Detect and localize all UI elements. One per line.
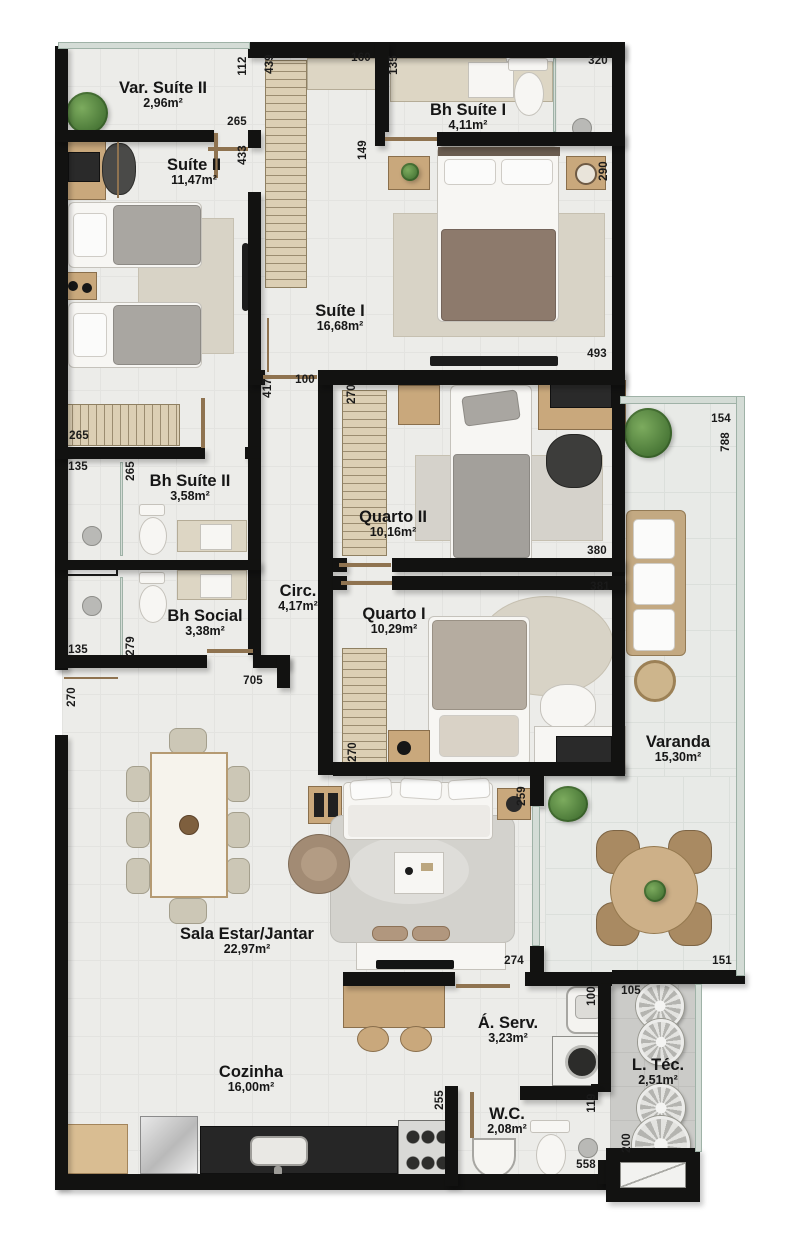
dim-label: 135 bbox=[388, 55, 400, 75]
room-label-bh-suite1: Bh Suíte I 4,11m² bbox=[430, 101, 506, 133]
shower-head-bh-social-icon bbox=[82, 596, 102, 616]
pouf-quarto1 bbox=[540, 684, 596, 730]
room-area: 10,16m² bbox=[359, 526, 427, 540]
blanket bbox=[113, 205, 201, 265]
toilet-tank-bh-suite2 bbox=[139, 504, 165, 516]
chair-suite2 bbox=[102, 143, 136, 195]
room-label-varanda: Varanda 15,30m² bbox=[646, 733, 710, 765]
decor-icon bbox=[421, 863, 433, 871]
dim-label: 433 bbox=[237, 145, 249, 165]
wall bbox=[375, 42, 389, 132]
wall bbox=[318, 385, 333, 775]
room-area: 4,11m² bbox=[430, 119, 506, 133]
dimension-line bbox=[64, 677, 118, 679]
dimension-line bbox=[267, 318, 269, 372]
dim-label: 788 bbox=[720, 432, 732, 452]
wall bbox=[445, 1086, 458, 1186]
room-area: 2,51m² bbox=[632, 1074, 684, 1088]
plant-icon bbox=[401, 163, 419, 181]
room-name: Sala Estar/Jantar bbox=[180, 925, 314, 943]
washer-door-icon bbox=[565, 1045, 599, 1079]
cushion bbox=[349, 777, 393, 801]
wc-toilet-tank bbox=[530, 1120, 570, 1133]
room-name: Suíte I bbox=[315, 302, 365, 320]
room-name: Quarto I bbox=[362, 605, 425, 623]
dim-label: 105 bbox=[621, 985, 641, 997]
bed-suite1 bbox=[437, 146, 559, 322]
wall bbox=[55, 735, 68, 1187]
shower-glass-bh-social bbox=[120, 577, 123, 657]
armchair-sala bbox=[288, 834, 350, 894]
blanket bbox=[432, 620, 527, 710]
shaft-hatch bbox=[620, 1162, 686, 1188]
room-label-var-suite2: Var. Suíte II 2,96m² bbox=[119, 79, 207, 111]
dim-label: 149 bbox=[357, 140, 369, 160]
toilet-tank-bh-suite1 bbox=[508, 58, 548, 71]
room-area: 3,58m² bbox=[150, 490, 231, 504]
plant-varanda-top bbox=[624, 408, 672, 458]
room-label-quarto1: Quarto I 10,29m² bbox=[362, 605, 425, 637]
decor-icon bbox=[68, 281, 78, 291]
sofa-varanda bbox=[626, 510, 686, 656]
door-bh-suite1 bbox=[385, 137, 437, 141]
shower-head-bh-suite2-icon bbox=[82, 526, 102, 546]
dim-label: 112 bbox=[237, 56, 249, 75]
dining-chair bbox=[226, 812, 250, 848]
blanket bbox=[453, 454, 530, 558]
sink-bh-suite2 bbox=[200, 524, 232, 550]
dining-chair bbox=[169, 728, 207, 754]
dim-label: 270 bbox=[346, 384, 358, 404]
dim-label: 320 bbox=[588, 55, 608, 67]
pillow bbox=[73, 313, 107, 357]
dim-label: 417 bbox=[262, 378, 274, 398]
room-name: Bh Suíte II bbox=[150, 472, 231, 490]
dim-label: 274 bbox=[504, 955, 524, 967]
wall bbox=[437, 132, 625, 146]
toilet-tank-bh-social bbox=[139, 572, 165, 584]
room-label-quarto2: Quarto II 10,16m² bbox=[359, 508, 427, 540]
door-bh-suite2 bbox=[201, 398, 205, 448]
kitchen-table bbox=[343, 980, 445, 1028]
room-area: 15,30m² bbox=[646, 751, 710, 765]
wall bbox=[248, 192, 261, 447]
room-name: Suíte II bbox=[167, 156, 221, 174]
pillow bbox=[444, 159, 496, 185]
wall bbox=[55, 447, 205, 459]
dim-label: 119 bbox=[586, 1093, 598, 1112]
room-area: 2,96m² bbox=[119, 97, 207, 111]
wall bbox=[612, 970, 745, 984]
shower-glass-bh-suite2 bbox=[120, 462, 123, 556]
pillow bbox=[501, 159, 553, 185]
decor-icon bbox=[405, 867, 413, 875]
bed-suite2-b bbox=[68, 302, 202, 368]
shower-glass-bh-suite1 bbox=[553, 58, 556, 132]
cushion bbox=[633, 563, 675, 605]
dim-label: 151 bbox=[712, 955, 732, 967]
dimension-line bbox=[117, 142, 119, 198]
room-area: 16,68m² bbox=[315, 320, 365, 334]
dim-label: 290 bbox=[598, 161, 610, 181]
room-name: Varanda bbox=[646, 733, 710, 751]
seat bbox=[301, 847, 337, 881]
room-area: 10,29m² bbox=[362, 623, 425, 637]
floor-cushion bbox=[412, 926, 450, 941]
dim-label: 270 bbox=[347, 742, 359, 762]
dining-chair bbox=[126, 812, 150, 848]
wall bbox=[55, 130, 214, 142]
wall bbox=[55, 1174, 612, 1190]
wall bbox=[530, 776, 544, 806]
wall bbox=[318, 370, 625, 385]
dim-label: 100 bbox=[586, 986, 598, 1006]
dim-label: 265 bbox=[227, 116, 247, 128]
cushion bbox=[447, 778, 490, 801]
decor-icon bbox=[82, 283, 92, 293]
door-wc bbox=[470, 1092, 474, 1138]
shower-head-wc-icon bbox=[578, 1138, 598, 1158]
room-name: Bh Suíte I bbox=[430, 101, 506, 119]
kitchen-cabinet bbox=[62, 1124, 128, 1174]
room-name: Var. Suíte II bbox=[119, 79, 207, 97]
stool bbox=[357, 1026, 389, 1052]
toilet-bh-social bbox=[139, 585, 167, 623]
plant-varanda-door bbox=[548, 786, 588, 822]
dim-label: 135 bbox=[68, 461, 88, 473]
toilet-bh-suite2 bbox=[139, 517, 167, 555]
room-area: 3,23m² bbox=[478, 1032, 538, 1046]
wall bbox=[598, 984, 611, 1084]
dim-label: 255 bbox=[434, 1090, 446, 1110]
dim-label: 265 bbox=[69, 430, 89, 442]
dining-chair bbox=[126, 858, 150, 894]
blanket bbox=[441, 229, 556, 321]
pillow bbox=[73, 213, 107, 257]
dim-label: 265 bbox=[125, 461, 137, 481]
room-label-aserv: Á. Serv. 3,23m² bbox=[478, 1014, 538, 1046]
dim-label: 381 bbox=[590, 581, 610, 593]
dim-label: 135 bbox=[68, 644, 88, 656]
tv-suite1-icon bbox=[430, 356, 558, 366]
floor-cushion bbox=[372, 926, 408, 941]
room-name: L. Téc. bbox=[632, 1056, 684, 1074]
sink-bh-social bbox=[200, 574, 232, 598]
centerpiece-plant-icon bbox=[644, 880, 666, 902]
dim-label: 160 bbox=[351, 52, 371, 64]
room-label-wc: W.C. 2,08m² bbox=[487, 1105, 527, 1137]
door-quarto1 bbox=[341, 581, 392, 585]
pillow bbox=[461, 389, 521, 427]
decor-icon bbox=[314, 793, 324, 817]
room-label-cozinha: Cozinha 16,00m² bbox=[219, 1063, 283, 1095]
room-name: Circ. bbox=[278, 582, 318, 600]
plant-var-suite2 bbox=[66, 92, 108, 134]
door-quarto2 bbox=[339, 563, 391, 567]
dim-label: 270 bbox=[66, 687, 78, 707]
room-area: 16,00m² bbox=[219, 1081, 283, 1095]
dim-label: 493 bbox=[587, 348, 607, 360]
toilet-bh-suite1 bbox=[514, 72, 544, 116]
wall bbox=[343, 972, 455, 986]
wall bbox=[333, 762, 625, 776]
door-aserv bbox=[456, 984, 510, 988]
bed-quarto1 bbox=[428, 616, 530, 766]
monitor-quarto2-icon bbox=[550, 384, 612, 408]
wall bbox=[375, 132, 385, 146]
nightstand-quarto2 bbox=[398, 385, 440, 425]
room-area: 11,47m² bbox=[167, 174, 221, 188]
room-name: Cozinha bbox=[219, 1063, 283, 1081]
nightstand-suite2 bbox=[63, 272, 97, 300]
wall bbox=[248, 42, 625, 58]
dim-label: 279 bbox=[125, 636, 137, 656]
room-area: 4,17m² bbox=[278, 600, 318, 614]
wall bbox=[248, 130, 261, 148]
dim-label: 259 bbox=[516, 786, 528, 806]
floor-plan: 112 265 439 160 135 320 433 149 290 493 … bbox=[0, 0, 810, 1246]
pillow bbox=[439, 715, 519, 757]
coffee-table-sala bbox=[394, 852, 444, 894]
wall bbox=[248, 459, 261, 655]
room-name: W.C. bbox=[487, 1105, 527, 1123]
room-label-bh-suite2: Bh Suíte II 3,58m² bbox=[150, 472, 231, 504]
stool bbox=[400, 1026, 432, 1052]
dining-chair bbox=[226, 858, 250, 894]
room-area: 3,38m² bbox=[167, 625, 242, 639]
bed-suite2-a bbox=[68, 202, 202, 268]
ltec-glass bbox=[695, 984, 702, 1152]
room-label-ltec: L. Téc. 2,51m² bbox=[632, 1056, 684, 1088]
dim-label: 100 bbox=[295, 374, 315, 386]
nightstand-suite1-left bbox=[388, 156, 430, 190]
closet-suite1 bbox=[265, 60, 307, 288]
room-name: Á. Serv. bbox=[478, 1014, 538, 1032]
dim-label: 705 bbox=[243, 675, 263, 687]
headboard bbox=[438, 147, 560, 156]
dim-label: 154 bbox=[711, 413, 731, 425]
lamp-icon bbox=[575, 163, 597, 185]
sofa-sala bbox=[343, 782, 493, 840]
dining-chair bbox=[169, 898, 207, 924]
cushion bbox=[633, 609, 675, 651]
blanket bbox=[113, 305, 201, 365]
wall bbox=[245, 447, 261, 459]
bed-quarto2 bbox=[450, 385, 532, 563]
wall bbox=[55, 560, 261, 570]
room-label-bh-social: Bh Social 3,38m² bbox=[167, 607, 242, 639]
dim-label: 200 bbox=[621, 1133, 633, 1153]
wall bbox=[277, 655, 290, 688]
dining-chair bbox=[126, 766, 150, 802]
varanda-railing-top bbox=[620, 396, 745, 404]
kitchen-sink bbox=[250, 1136, 308, 1166]
chair-quarto2 bbox=[546, 434, 602, 488]
room-name: Bh Social bbox=[167, 607, 242, 625]
room-area: 22,97m² bbox=[180, 943, 314, 957]
cushion bbox=[399, 778, 442, 801]
room-label-sala: Sala Estar/Jantar 22,97m² bbox=[180, 925, 314, 957]
room-area: 2,08m² bbox=[487, 1123, 527, 1137]
dim-label: 380 bbox=[587, 545, 607, 557]
wall bbox=[55, 655, 207, 668]
window-var-suite2 bbox=[58, 42, 250, 49]
room-label-circ: Circ. 4,17m² bbox=[278, 582, 318, 614]
sliding-door-sala-varanda bbox=[532, 806, 540, 946]
decor-icon bbox=[397, 741, 411, 755]
coffee-table-varanda bbox=[634, 660, 676, 702]
laptop-suite2-icon bbox=[68, 152, 100, 182]
room-label-suite1: Suíte I 16,68m² bbox=[315, 302, 365, 334]
table-centerpiece-icon bbox=[179, 815, 199, 835]
door-bh-social bbox=[207, 649, 253, 653]
room-name: Quarto II bbox=[359, 508, 427, 526]
wall bbox=[612, 42, 625, 776]
decor-icon bbox=[328, 793, 338, 817]
cushion bbox=[633, 519, 675, 559]
dim-label: 439 bbox=[264, 54, 276, 74]
dining-chair bbox=[226, 766, 250, 802]
varanda-railing-right bbox=[736, 396, 745, 976]
wc-toilet bbox=[536, 1134, 566, 1176]
room-label-suite2: Suíte II 11,47m² bbox=[167, 156, 221, 188]
seat bbox=[348, 805, 490, 837]
wall bbox=[392, 558, 625, 572]
fridge bbox=[140, 1116, 198, 1174]
dim-label: 558 bbox=[576, 1159, 596, 1171]
tv-sala-icon bbox=[376, 960, 454, 969]
